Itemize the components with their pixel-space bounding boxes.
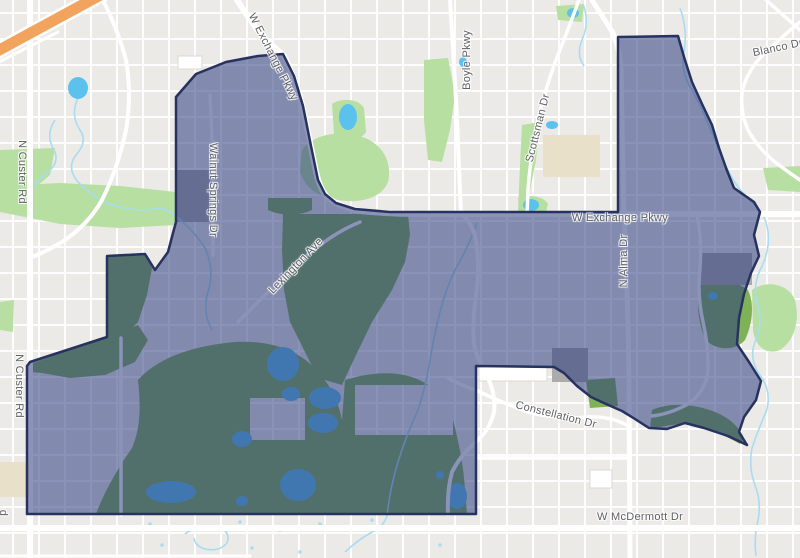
map-canvas[interactable]: W Exchange PkwyBoyle PkwyScottsman DrBla… bbox=[0, 0, 800, 558]
map-svg bbox=[0, 0, 800, 558]
